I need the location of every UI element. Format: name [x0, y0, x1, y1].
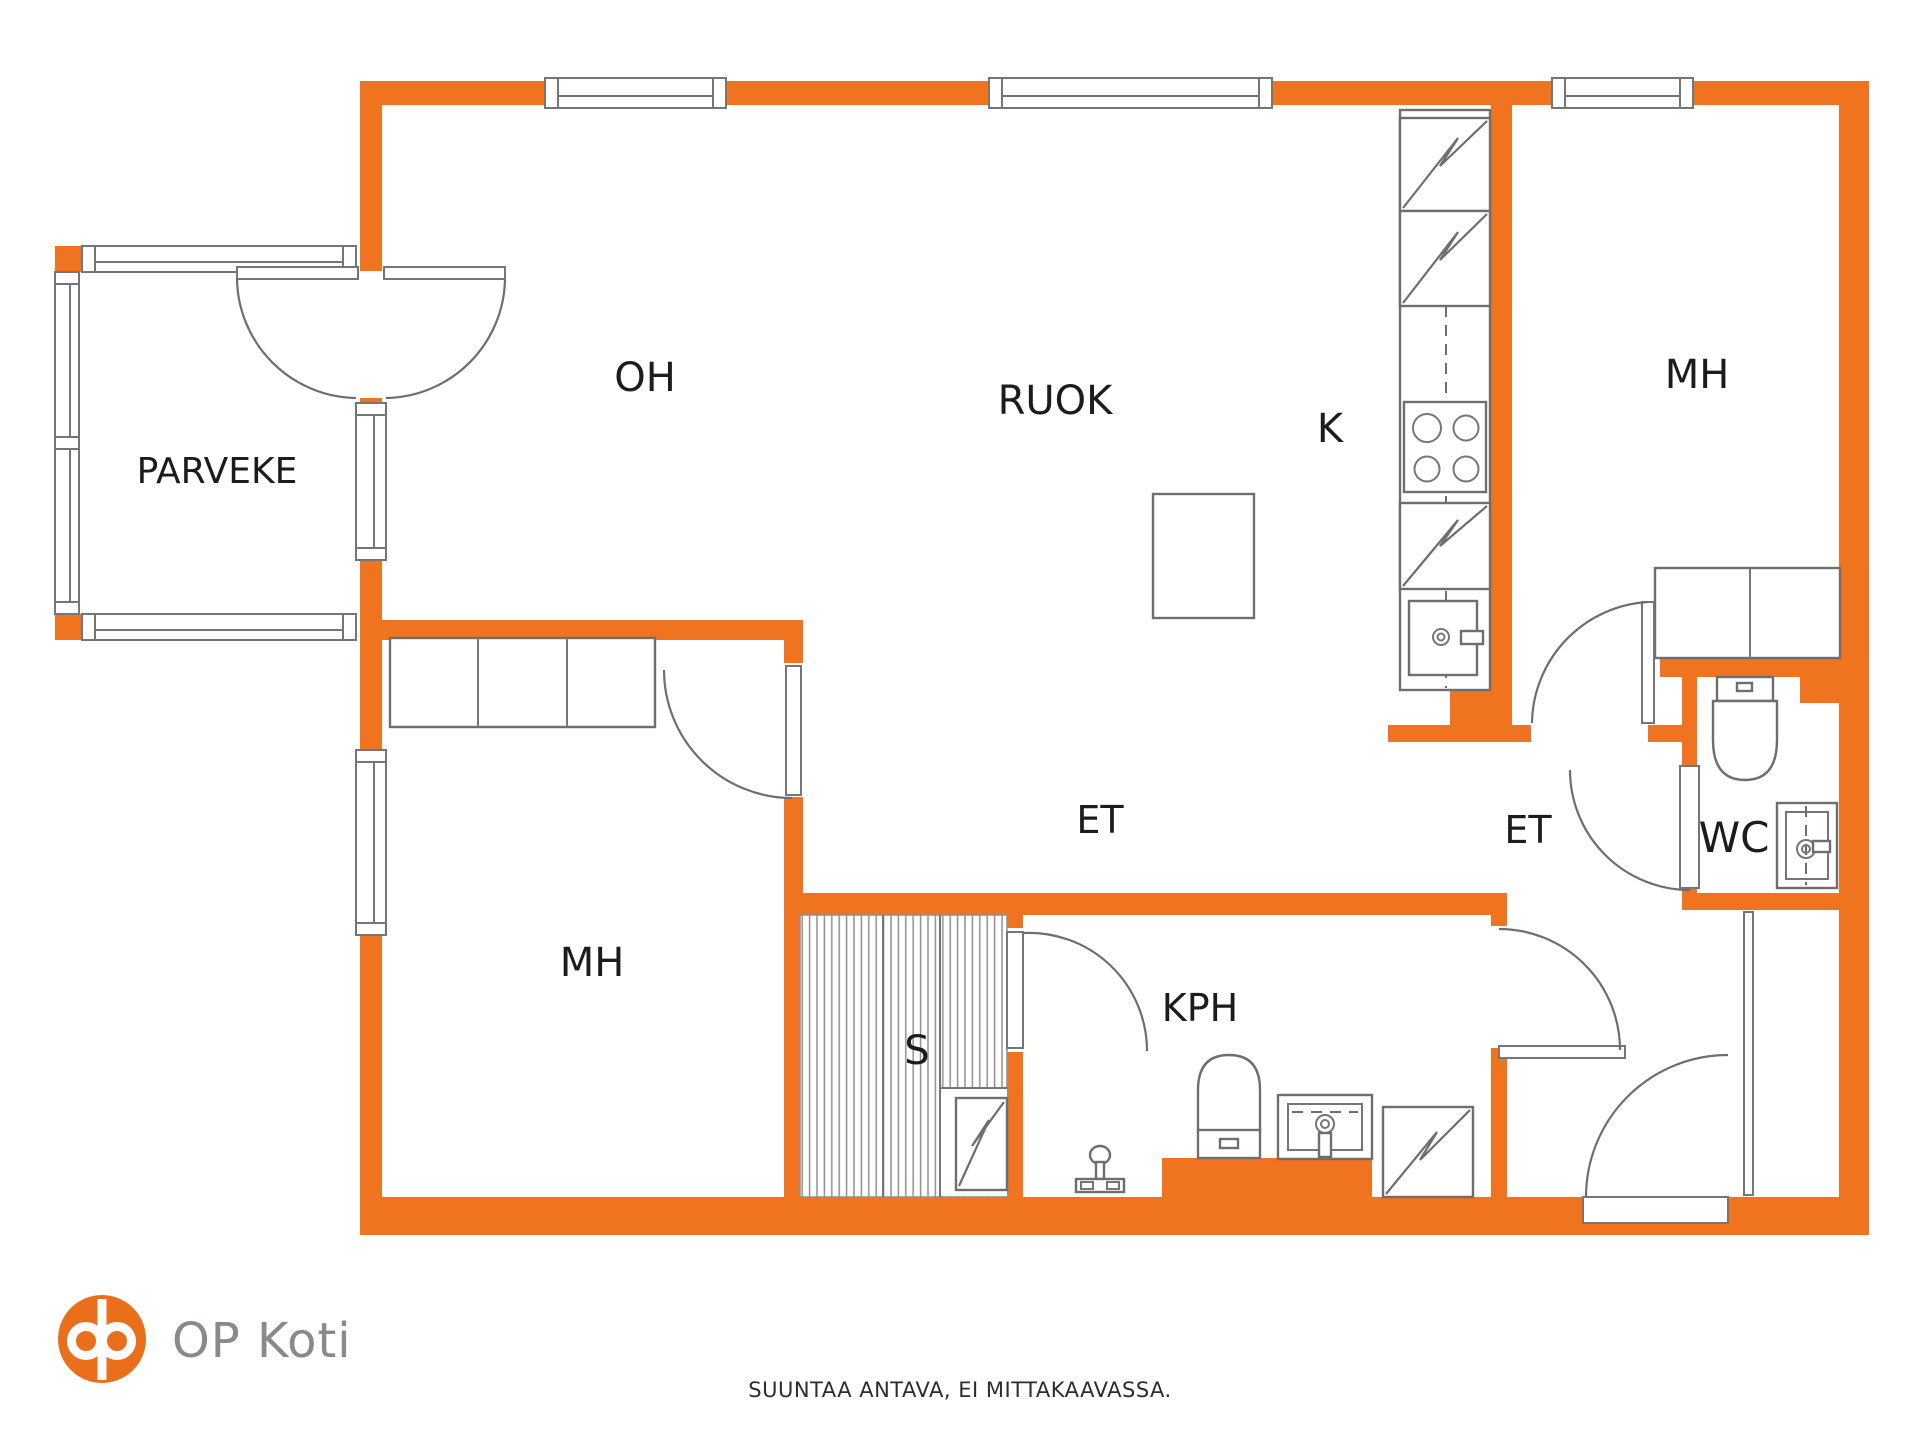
- floor-drain-icon: [1076, 1146, 1124, 1192]
- wall-k-mh: [1491, 105, 1512, 725]
- window-oh-top: [545, 78, 726, 108]
- wall-wc-chunk: [1800, 677, 1843, 703]
- room-label-s: S: [904, 1028, 929, 1074]
- door-mh-upper: [1532, 602, 1654, 723]
- door-wc: [1570, 766, 1699, 890]
- wall-kitchen-step: [1450, 690, 1491, 726]
- appliance-icon: [1400, 503, 1490, 589]
- window-left-upper: [356, 403, 386, 560]
- fridge-icon: [1400, 118, 1490, 211]
- toilet-icon: [1198, 1055, 1260, 1158]
- room-label-kph: KPH: [1162, 986, 1238, 1030]
- room-label-et-left: ET: [1076, 798, 1124, 842]
- washer-icon: [1383, 1107, 1473, 1197]
- room-label-wc: WC: [1699, 813, 1770, 862]
- floorplan-drawing: PARVEKE OH RUOK K MH MH ET ET KPH S WC O…: [0, 0, 1920, 1440]
- floorplan-page: PARVEKE OH RUOK K MH MH ET ET KPH S WC O…: [0, 0, 1920, 1440]
- window-ruok-top: [989, 78, 1272, 108]
- freezer-icon: [1400, 211, 1490, 306]
- wall-wc-bottom: [1682, 893, 1843, 910]
- room-label-ruok: RUOK: [998, 378, 1115, 424]
- balcony-window-bottom: [82, 614, 356, 640]
- wall-sauna-kph-top: [784, 893, 1507, 915]
- room-label-mh-top: MH: [1665, 352, 1730, 398]
- balcony-window-left: [55, 272, 79, 614]
- room-label-parveke: PARVEKE: [137, 451, 298, 492]
- door-sauna: [1007, 932, 1147, 1051]
- dining-table: [1153, 494, 1254, 618]
- door-mh-lower: [664, 666, 801, 798]
- room-label-k: K: [1317, 406, 1345, 452]
- door-kph: [1499, 929, 1625, 1058]
- disclaimer-text: SUUNTAA ANTAVA, EI MITTAKAAVASSA.: [748, 1378, 1171, 1402]
- door-entrance: [1583, 1055, 1728, 1223]
- room-label-mh-bottom: MH: [560, 940, 625, 986]
- wall-left: [360, 81, 382, 1235]
- bathroom-sink-icon: [1278, 1095, 1372, 1159]
- window-mh-top: [1552, 78, 1693, 108]
- window-left-lower: [356, 750, 386, 935]
- kph-plumbing-platform: [1162, 1158, 1372, 1197]
- wardrobe-mh-upper: [1655, 568, 1840, 658]
- stove-icon: [1404, 402, 1486, 492]
- room-label-oh: OH: [614, 355, 676, 401]
- wardrobe-mh-lower: [390, 638, 655, 727]
- sauna-heater-icon: [956, 1098, 1007, 1190]
- room-label-et-right: ET: [1504, 808, 1552, 852]
- balcony-structure: [55, 246, 356, 640]
- brand-wordmark: OP Koti: [172, 1313, 352, 1369]
- wc-sink-icon: [1777, 803, 1837, 888]
- hall-partition: [1744, 912, 1753, 1195]
- furniture: [390, 494, 1840, 1195]
- wc-toilet-icon: [1713, 677, 1777, 780]
- balcony-post-topleft: [55, 246, 82, 272]
- wall-right: [1839, 81, 1869, 1235]
- kitchen-counter: [1400, 110, 1490, 690]
- wall-mh-bottom: [1660, 658, 1843, 677]
- balcony-post-bottomleft: [55, 614, 82, 640]
- kitchen-sink-icon: [1409, 601, 1483, 675]
- op-koti-logo: OP Koti: [58, 1295, 352, 1383]
